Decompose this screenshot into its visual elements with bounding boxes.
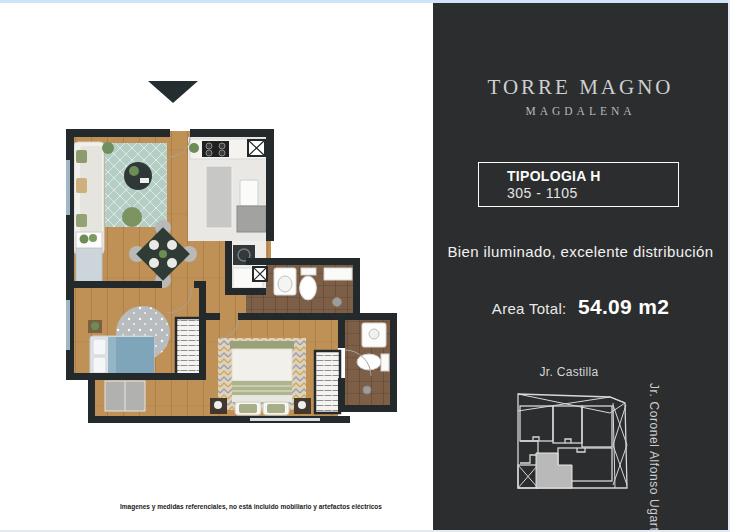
toilet bbox=[357, 354, 381, 370]
flyer-page: Imagenes y medidas referenciales, no est… bbox=[0, 0, 730, 532]
kitchen-island bbox=[206, 166, 232, 228]
street-label-top: Jr. Castilla bbox=[433, 365, 705, 379]
typology-box: TIPOLOGIA H 305 - 1105 bbox=[478, 162, 679, 207]
disclaimer-text: Imagenes y medidas referenciales, no est… bbox=[120, 503, 420, 510]
info-panel: TORRE MAGNO MAGDALENA TIPOLOGIA H 305 - … bbox=[433, 3, 728, 530]
typology-range: 305 - 1105 bbox=[507, 185, 678, 202]
toilet bbox=[300, 276, 317, 300]
floor-plan-side: Imagenes y medidas referenciales, no est… bbox=[0, 3, 433, 530]
floor-plan bbox=[60, 118, 405, 433]
street-label-right: Jr. Coronel Alfonso Ugarte bbox=[647, 383, 661, 528]
tagline: Bien iluminado, excelente distribución bbox=[433, 243, 728, 260]
bed-master bbox=[230, 341, 294, 349]
walk-in-closet bbox=[315, 351, 340, 413]
site-map bbox=[505, 385, 640, 497]
typology-name: TIPOLOGIA H bbox=[507, 168, 678, 185]
top-border-strip bbox=[0, 0, 730, 3]
pouf bbox=[122, 207, 142, 227]
area-value: 54.09 m2 bbox=[578, 295, 669, 318]
area-total: Area Total: 54.09 m2 bbox=[433, 295, 728, 319]
planter-nook bbox=[76, 232, 102, 286]
shower-drain bbox=[363, 386, 371, 394]
coffee-table bbox=[124, 162, 152, 190]
brand-title: TORRE MAGNO bbox=[433, 75, 728, 100]
brand-subtitle: MAGDALENA bbox=[433, 105, 728, 117]
highlighted-unit bbox=[536, 453, 572, 488]
area-label: Area Total: bbox=[492, 300, 567, 317]
entrance-arrow-icon bbox=[148, 81, 198, 103]
shower-drain bbox=[333, 298, 342, 307]
